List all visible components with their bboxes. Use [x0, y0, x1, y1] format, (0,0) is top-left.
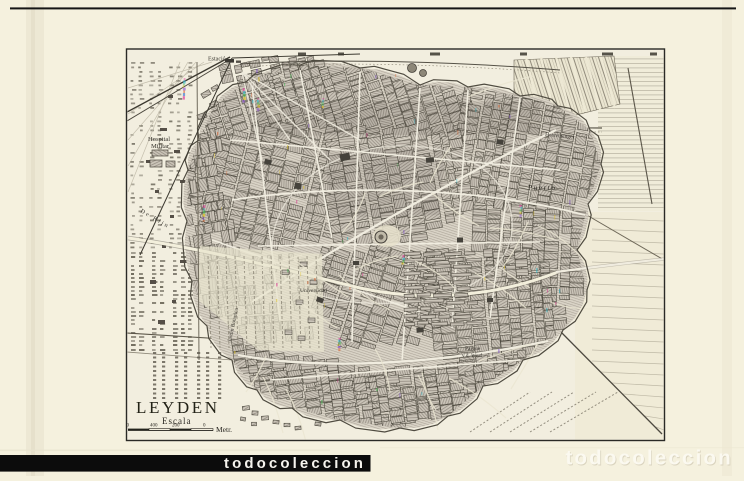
svg-text:Metr.: Metr.	[216, 425, 232, 434]
svg-text:todocoleccion: todocoleccion	[224, 455, 366, 472]
svg-text:v.d. Werf: v.d. Werf	[462, 352, 482, 359]
svg-text:Universidad: Universidad	[300, 288, 327, 294]
svg-text:Militar: Militar	[151, 143, 170, 150]
svg-text:LEYDEN: LEYDEN	[136, 398, 220, 417]
svg-text:200: 200	[172, 424, 180, 429]
svg-text:Parque: Parque	[465, 346, 481, 352]
svg-text:todocoleccion: todocoleccion	[565, 446, 733, 469]
svg-text:Estació.: Estació.	[208, 57, 228, 63]
svg-text:400: 400	[150, 424, 158, 429]
svg-text:Hospital: Hospital	[148, 136, 170, 143]
svg-text:Puerto: Puerto	[528, 183, 557, 192]
